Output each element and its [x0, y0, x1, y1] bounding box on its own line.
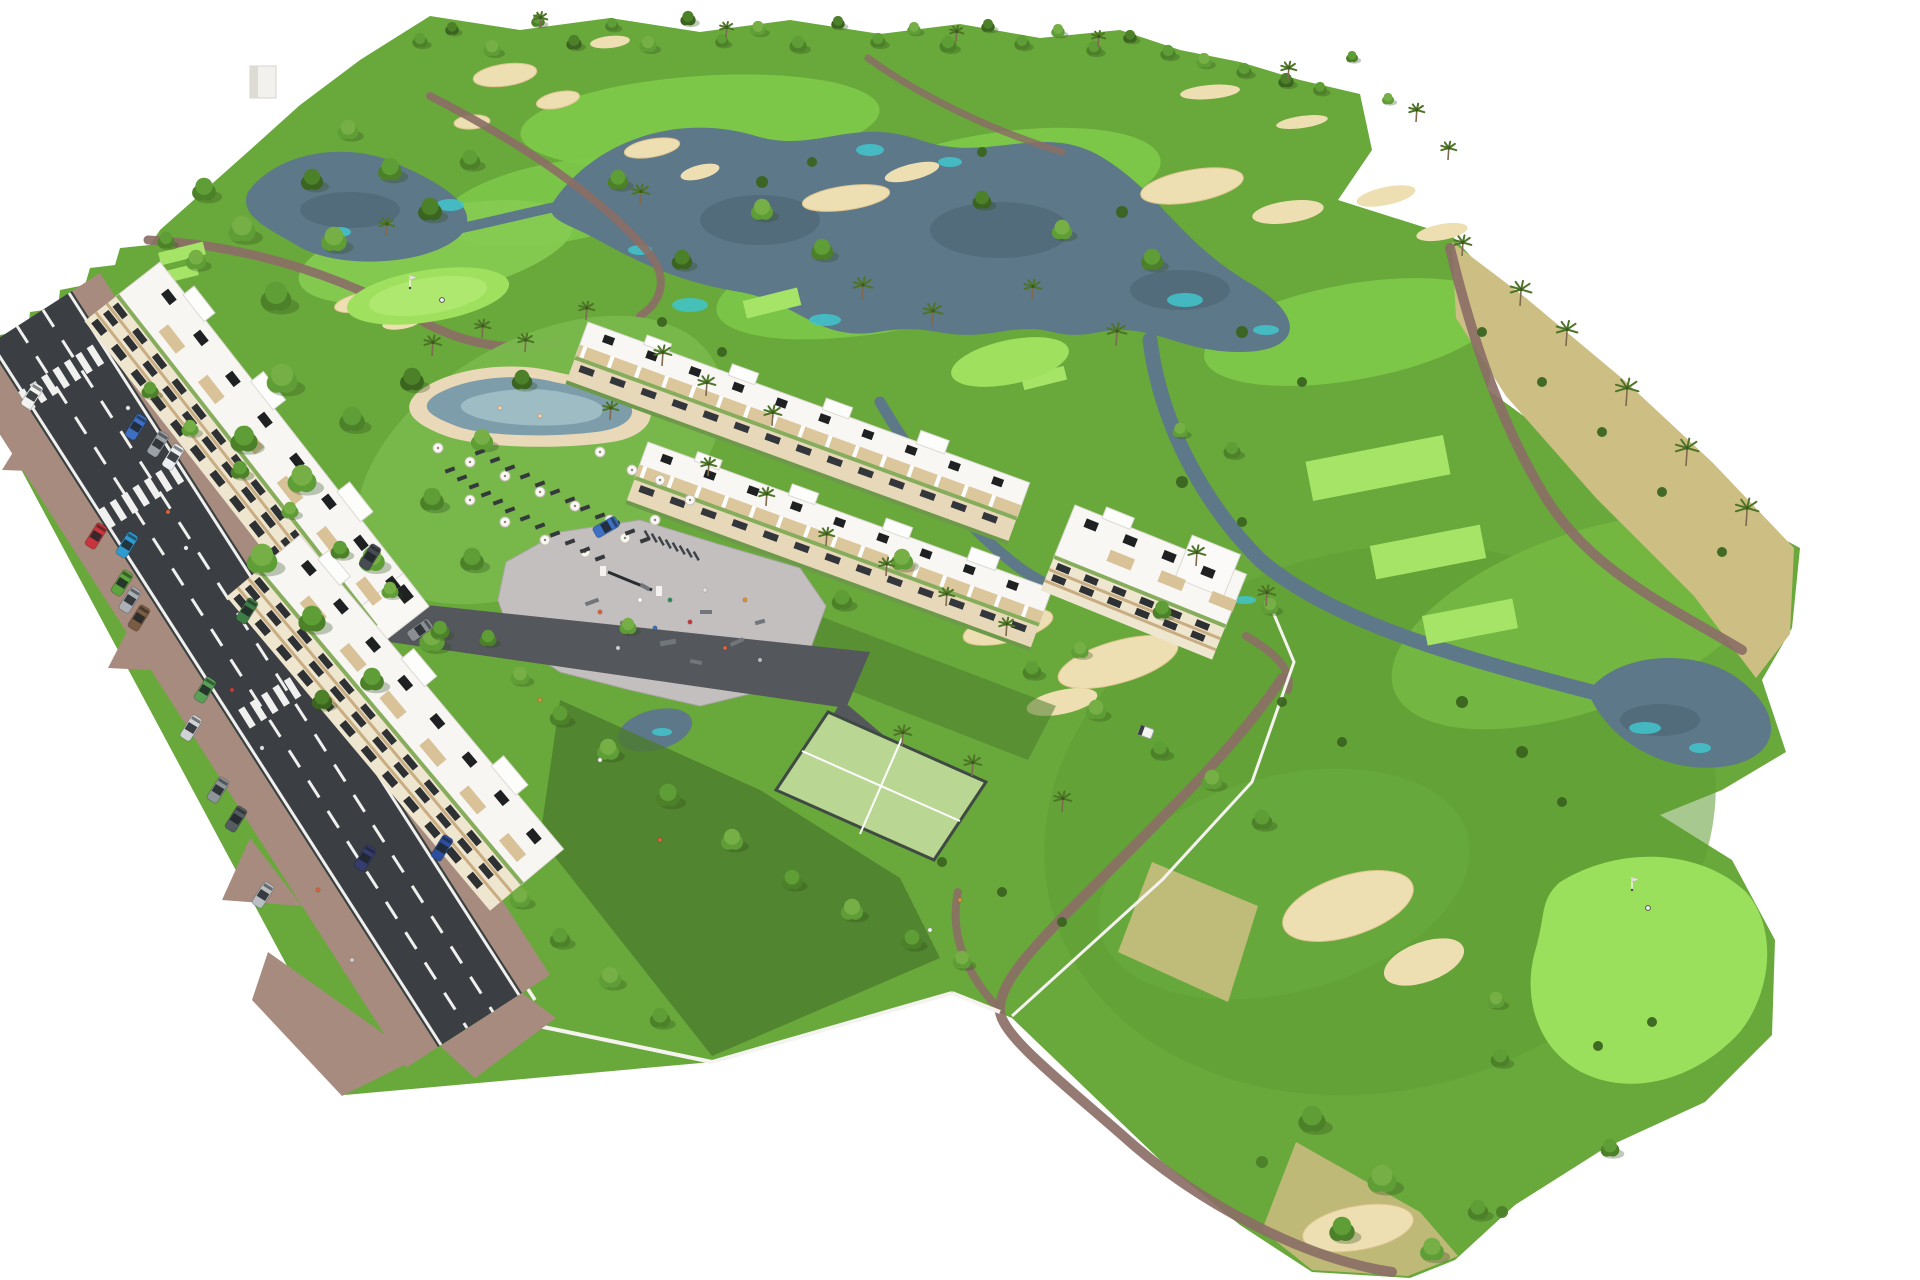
- pool-umbrella: [650, 515, 660, 525]
- person: [653, 626, 657, 630]
- pool-umbrella: [595, 447, 605, 457]
- person: [166, 510, 170, 514]
- aerial-site-render: [0, 0, 1920, 1280]
- person: [668, 598, 672, 602]
- rect: [600, 566, 606, 576]
- person: [260, 746, 264, 750]
- bush: [1057, 917, 1067, 927]
- person: [538, 414, 542, 418]
- ell: [1167, 293, 1203, 307]
- bush: [1717, 547, 1727, 557]
- pool-umbrella: [500, 471, 510, 481]
- bush: [1277, 697, 1287, 707]
- person: [638, 598, 642, 602]
- person: [616, 646, 620, 650]
- person: [350, 958, 354, 962]
- person: [230, 688, 234, 692]
- pool-umbrella: [627, 465, 637, 475]
- bush: [937, 857, 947, 867]
- pool-umbrella: [655, 475, 665, 485]
- pool-umbrella: [465, 495, 475, 505]
- bush: [1236, 326, 1248, 338]
- pool-umbrella: [535, 487, 545, 497]
- pool-umbrella: [500, 517, 510, 527]
- bush: [1593, 1041, 1603, 1051]
- aerial-render-svg: [0, 0, 1920, 1280]
- ell: [1629, 722, 1661, 734]
- pool-umbrella: [540, 535, 550, 545]
- golf-resort-masterplan-image: [0, 0, 1920, 1280]
- bush: [717, 347, 727, 357]
- ell: [1253, 325, 1279, 335]
- ell: [672, 298, 708, 312]
- bush: [1537, 377, 1547, 387]
- bush: [1657, 487, 1667, 497]
- bush: [1647, 1017, 1657, 1027]
- bush: [1516, 746, 1528, 758]
- person: [723, 646, 727, 650]
- ell: [856, 144, 884, 156]
- bush: [1456, 696, 1468, 708]
- person: [498, 406, 502, 410]
- pool-umbrella: [685, 495, 695, 505]
- bush: [657, 317, 667, 327]
- person: [688, 620, 692, 624]
- rect: [700, 610, 712, 614]
- person: [703, 588, 707, 592]
- bush: [1176, 476, 1188, 488]
- bush: [1256, 1156, 1268, 1168]
- person: [928, 928, 932, 932]
- bush: [807, 157, 817, 167]
- bush: [1557, 797, 1567, 807]
- rect: [656, 586, 662, 596]
- bush: [1237, 517, 1247, 527]
- ell: [652, 728, 672, 736]
- pool-umbrella: [570, 501, 580, 511]
- person: [658, 838, 662, 842]
- rect: [250, 66, 258, 98]
- pool-umbrella: [465, 457, 475, 467]
- bush: [1297, 377, 1307, 387]
- ell: [938, 157, 962, 167]
- bush: [756, 176, 768, 188]
- person: [598, 610, 602, 614]
- pool-umbrella: [433, 443, 443, 453]
- bush: [977, 147, 987, 157]
- bush: [1116, 206, 1128, 218]
- person: [758, 658, 762, 662]
- golfer: [1646, 906, 1651, 911]
- ell: [1689, 743, 1711, 753]
- bush: [1477, 327, 1487, 337]
- person: [316, 888, 320, 892]
- person: [184, 546, 188, 550]
- person: [958, 898, 962, 902]
- ell: [809, 314, 841, 326]
- person: [743, 598, 747, 602]
- golfer: [440, 298, 445, 303]
- bush: [997, 887, 1007, 897]
- bush: [1337, 737, 1347, 747]
- bush: [1597, 427, 1607, 437]
- person: [538, 698, 542, 702]
- ell: [930, 202, 1070, 258]
- person: [126, 406, 130, 410]
- person: [598, 758, 602, 762]
- bush: [1496, 1206, 1508, 1218]
